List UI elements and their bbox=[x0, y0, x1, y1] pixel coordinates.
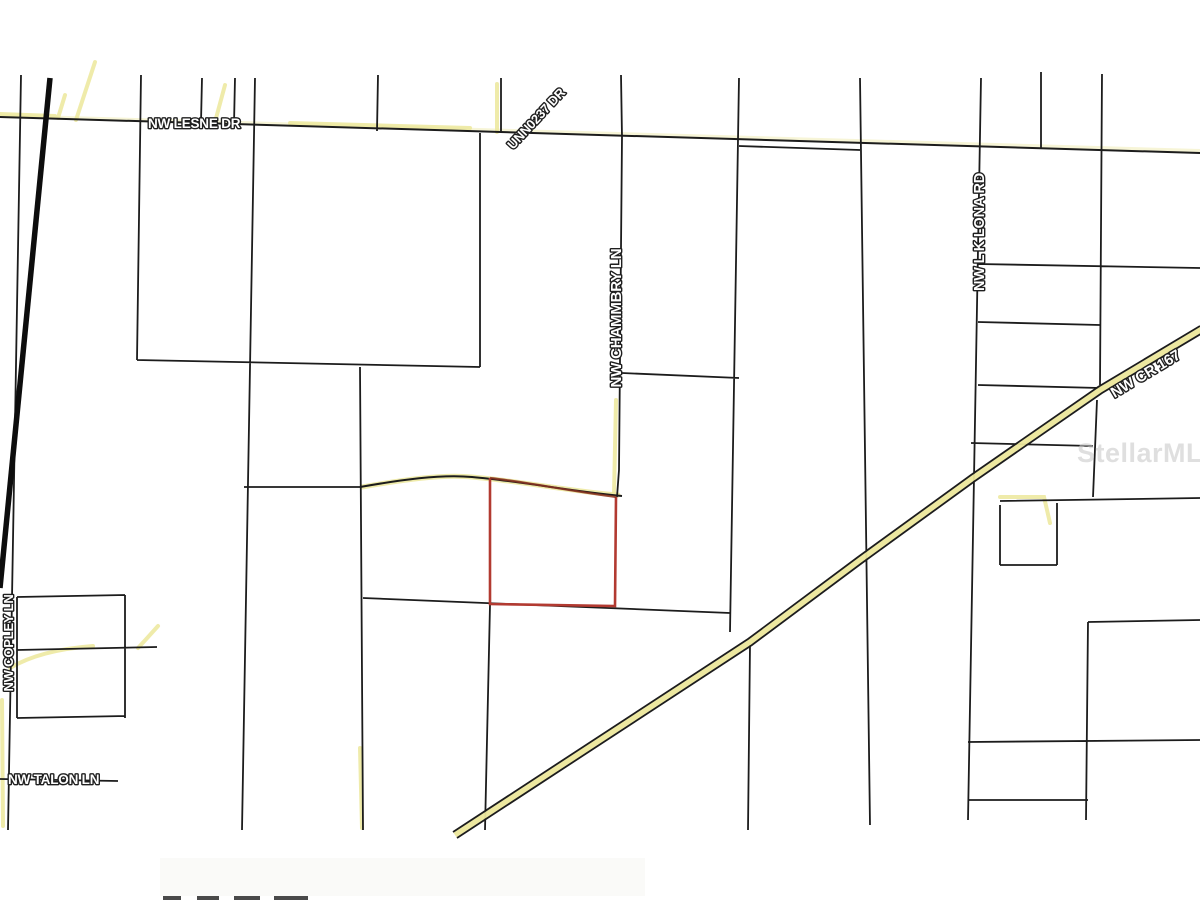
scan-tint-strip bbox=[160, 858, 645, 896]
subject-parcel-top-edge bbox=[490, 478, 616, 497]
stellar-mls-watermark: StellarMLS bbox=[1077, 438, 1200, 468]
road-label-nw-chammbry-ln: NW CHAMMBRY LN bbox=[608, 249, 625, 388]
parcel-boundary-lines bbox=[0, 72, 1200, 830]
map-canvas: NW LESNE DR UNN0237 DR NW CHAMMBRY LN NW… bbox=[0, 0, 1200, 900]
road-label-unn0237-dr: UNN0237 DR bbox=[504, 85, 568, 152]
road-label-nw-lesne-dr: NW LESNE DR bbox=[148, 116, 241, 131]
survey-thick-line bbox=[0, 78, 50, 588]
road-nw-cr-167-fill bbox=[455, 329, 1200, 835]
parcel-map: NW LESNE DR UNN0237 DR NW CHAMMBRY LN NW… bbox=[0, 0, 1200, 900]
subject-parcel-outline bbox=[490, 478, 616, 606]
road-label-nw-copley-ln: NW COPLEY LN bbox=[1, 594, 16, 691]
bottom-cutoff-marks bbox=[163, 896, 308, 900]
road-label-nw-talon-ln: NW TALON LN bbox=[8, 772, 99, 787]
minor-road-yellow-highlights bbox=[0, 62, 1050, 828]
road-label-nw-l-k-lona-rd: NW L K LONA RD bbox=[972, 173, 988, 291]
